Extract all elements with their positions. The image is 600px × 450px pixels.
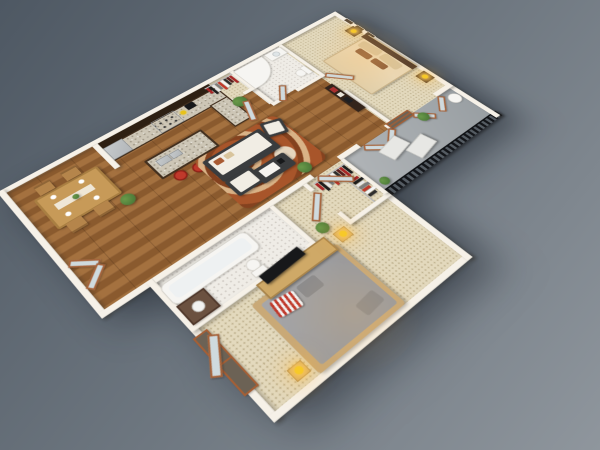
console-books (336, 92, 344, 98)
sink-basin (271, 51, 282, 58)
apartment-plan (0, 11, 581, 450)
scene (0, 0, 600, 450)
console-books (329, 87, 338, 93)
plate (77, 178, 85, 184)
armchair-cushion (263, 121, 285, 135)
coffee-table-tray (258, 162, 280, 178)
floor-plan-render (0, 0, 600, 450)
plate (92, 194, 100, 200)
closet-door-leaf (312, 192, 322, 221)
bedroom2-door-leaf (317, 175, 354, 182)
sink-basin (189, 298, 208, 314)
plate (49, 194, 57, 200)
plate (64, 211, 72, 218)
bathroom-door-leaf (279, 85, 287, 101)
console-books (343, 96, 354, 103)
table-decor (276, 158, 285, 165)
